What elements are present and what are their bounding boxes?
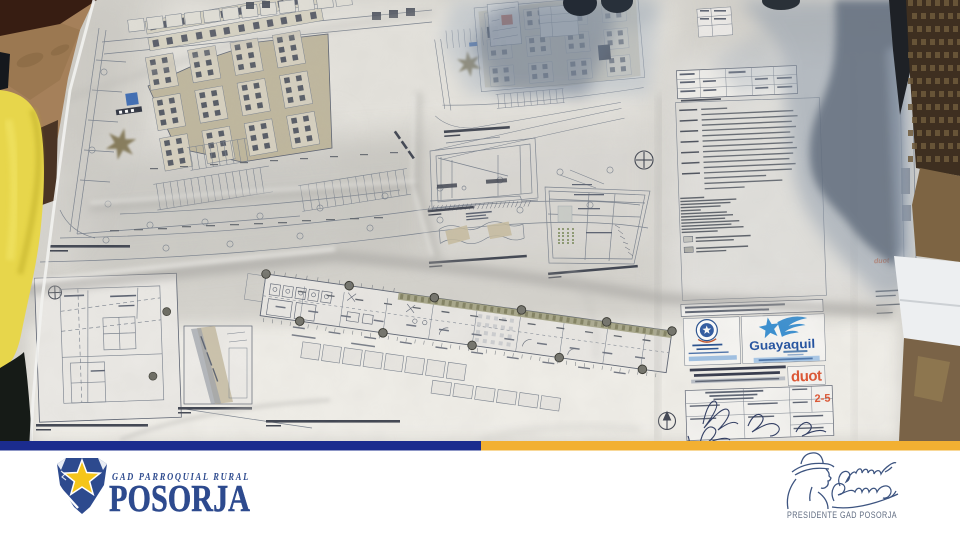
svg-text:PRESIDENTE GAD POSORJA: PRESIDENTE GAD POSORJA <box>787 510 897 520</box>
svg-text:POSORJA: POSORJA <box>109 478 250 520</box>
